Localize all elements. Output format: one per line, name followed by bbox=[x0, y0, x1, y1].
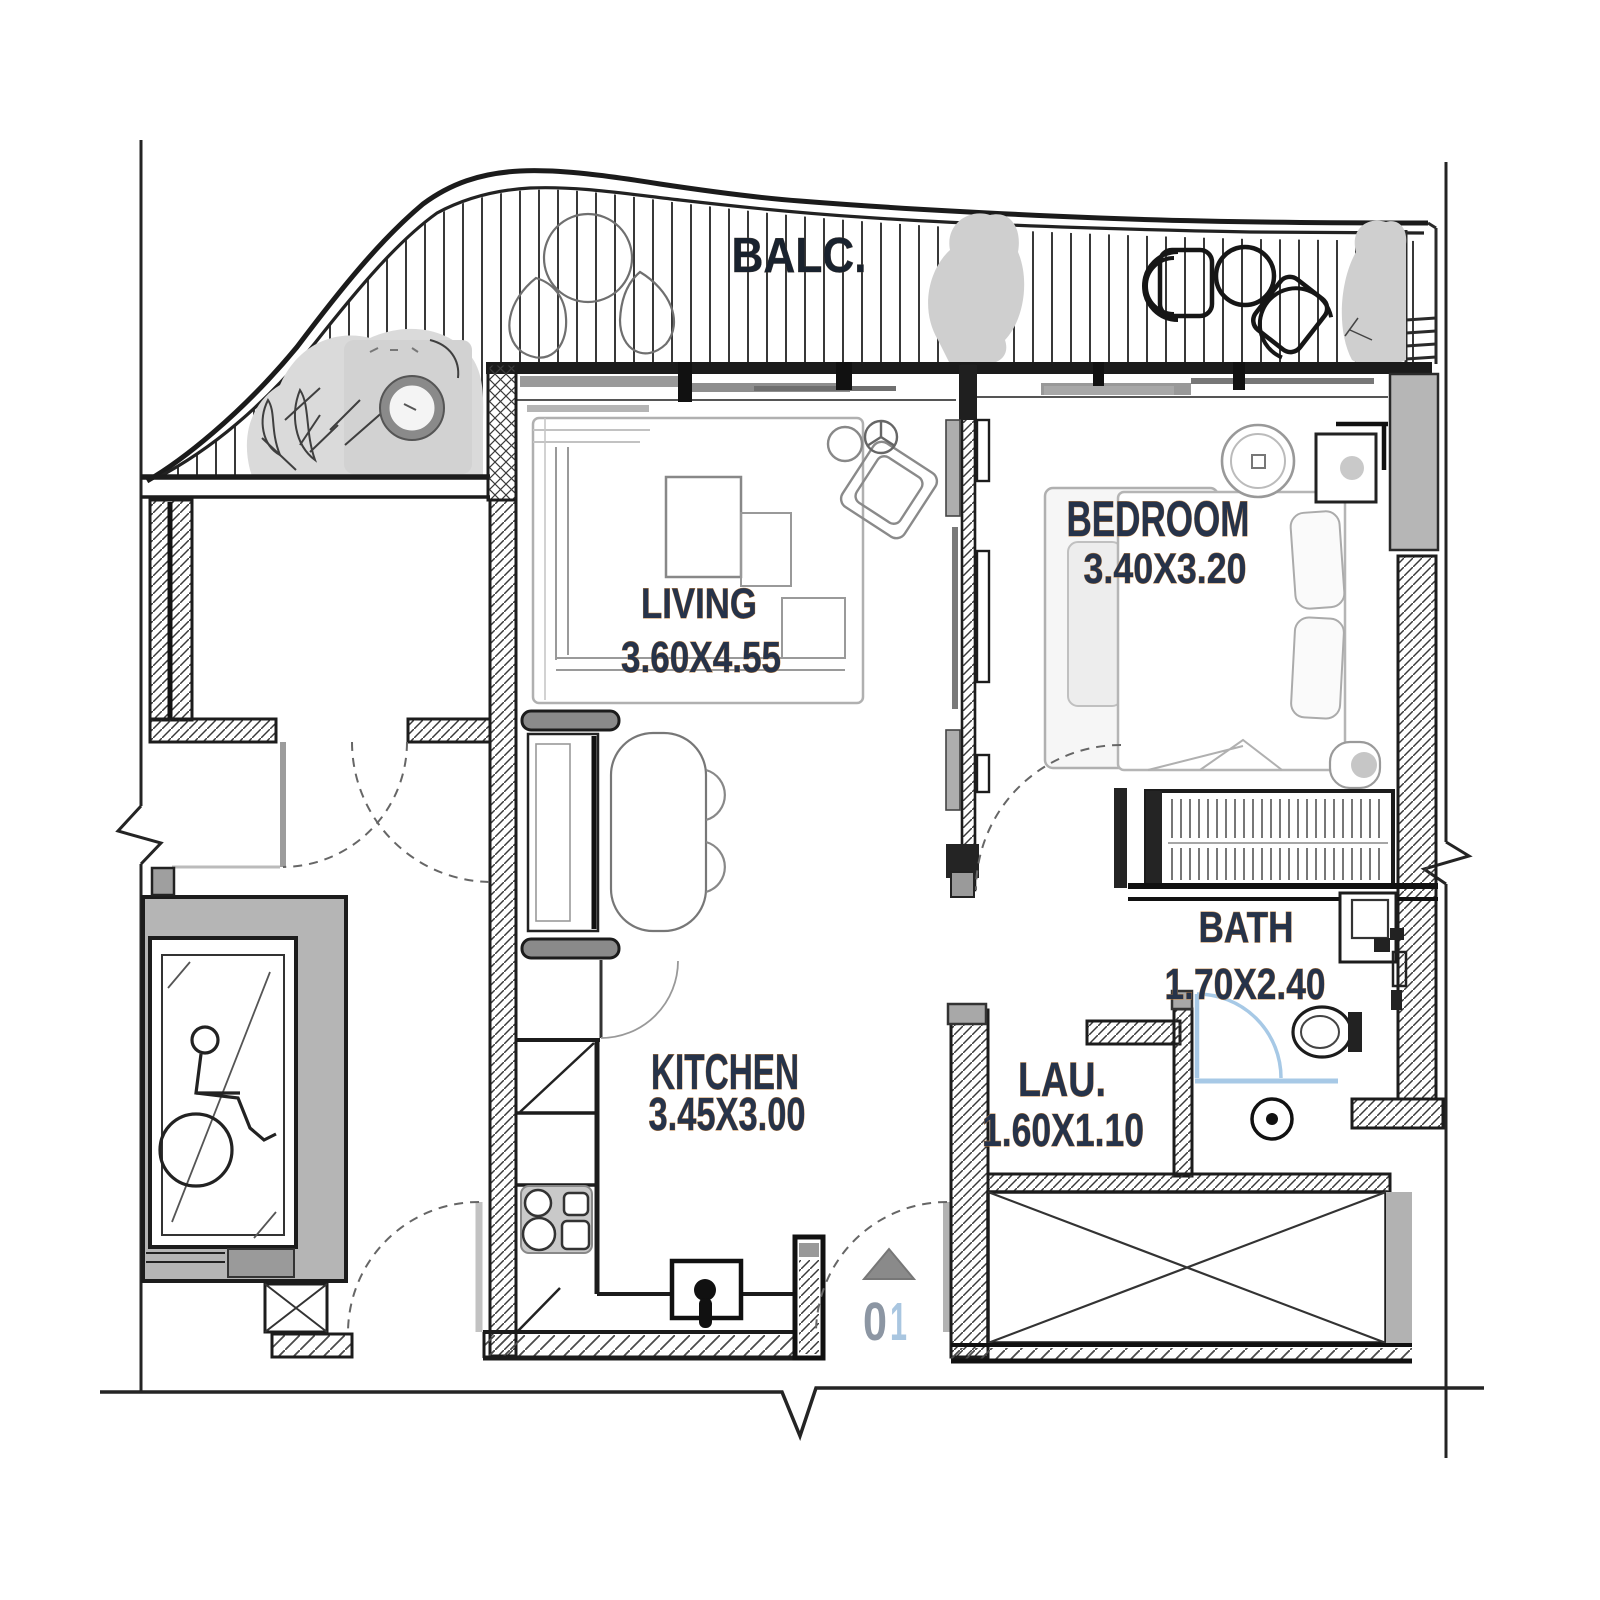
svg-text:3.45X3.00: 3.45X3.00 bbox=[649, 1088, 806, 1140]
svg-text:0: 0 bbox=[863, 1292, 887, 1352]
svg-text:BALC.: BALC. bbox=[732, 229, 867, 283]
svg-text:LIVING: LIVING bbox=[641, 580, 757, 628]
svg-text:1.70X2.40: 1.70X2.40 bbox=[1165, 960, 1326, 1009]
svg-text:LAU.: LAU. bbox=[1018, 1054, 1106, 1107]
svg-text:1: 1 bbox=[890, 1292, 907, 1352]
svg-text:1.60X1.10: 1.60X1.10 bbox=[982, 1104, 1144, 1156]
svg-text:3.40X3.20: 3.40X3.20 bbox=[1084, 545, 1247, 593]
svg-text:3.60X4.55: 3.60X4.55 bbox=[621, 633, 781, 682]
svg-text:BEDROOM: BEDROOM bbox=[1067, 491, 1250, 547]
svg-text:BATH: BATH bbox=[1199, 903, 1294, 952]
